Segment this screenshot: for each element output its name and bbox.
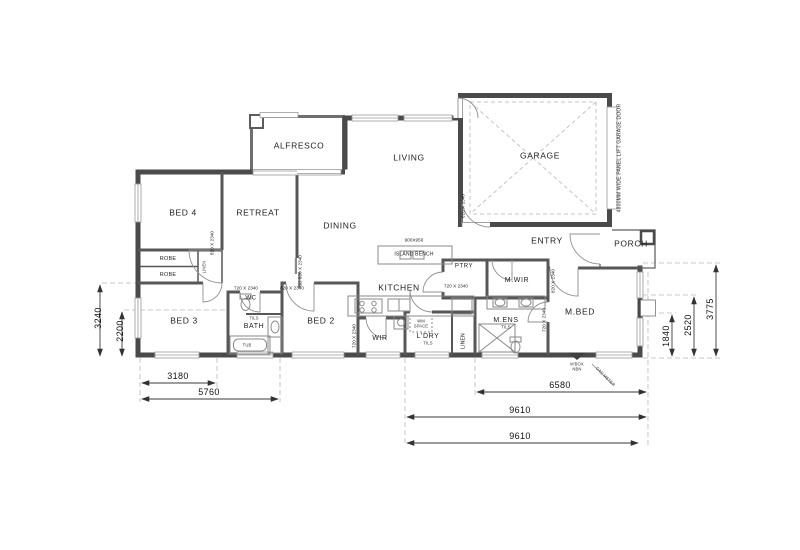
door-size-label-retreat-slider: SD 820 X 2340 [299,255,304,287]
room-label-living: LIVING [393,153,424,162]
dim-label-3180: 3180 [167,372,189,382]
room-label-porch: PORCH [614,239,648,248]
island-bench-label: ISLAND BENCH [394,252,433,258]
bath-vanity [268,317,282,337]
dim-label-6580: 6580 [549,381,571,391]
island-bench-size-label: 900X950 [405,239,424,244]
tub-label: TUB [243,344,252,349]
room-label-mens: M.ENS [493,317,518,325]
dim-label-5760: 5760 [198,388,220,398]
room-label-garage: GARAGE [520,151,560,160]
wm-space-label: WM SPACE [414,319,428,328]
room-label-entry: ENTRY [531,236,563,245]
dim-label-3240: 3240 [94,307,104,329]
door-size-label-bed2: 820 X 2340 [280,287,304,292]
room-label-robe-a: ROBE [160,256,176,262]
meter-box-label: M'BOX NBN [570,362,584,371]
dim-label-2200: 2200 [116,320,126,342]
room-label-bed3: BED 3 [170,316,198,325]
door-size-label-garage-entry: 820 X 2340 [462,194,467,218]
ldry-tiles-label: TILS [423,342,432,347]
door-size-label-bed4: 820 X 2340 [211,231,216,255]
dim-label-9610-b: 9610 [509,432,531,442]
bath-tiles-label: TILS [249,317,258,322]
door-size-label-wir: 720 X 2340 [353,324,358,348]
room-label-dining: DINING [323,221,356,230]
garage-door-note: 4800MM WIDE PANEL LIFT GARAGE DOOR [617,104,623,213]
room-label-robe-b: ROBE [160,272,176,278]
mens-tiles-label: TILS [501,326,510,331]
fixtures [230,246,613,385]
room-label-kitchen: KITCHEN [378,283,420,292]
room-label-alfresco: ALFRESCO [274,141,325,150]
room-label-wir: WIR [372,335,387,343]
room-label-bed2: BED 2 [307,316,335,325]
door-size-label-mens: 720 X 2340 [543,308,548,332]
dim-label-2520: 2520 [684,314,694,336]
dim-label-3775: 3775 [706,298,716,320]
room-label-ldry: L'DRY [417,333,440,341]
dim-label-1840: 1840 [662,325,672,347]
floor-plan-drawing [0,0,800,550]
dim-label-9610-a: 9610 [509,406,531,416]
room-label-bath: BATH [244,323,265,331]
door-size-label-ptry: 720 X 2340 [444,285,468,290]
door-size-label-wc: 720 X 2340 [234,287,258,292]
door-size-label-entry: 820 X 2340 [552,269,557,293]
room-label-mwir: M.WIR [505,277,529,285]
room-label-wc: WC [245,296,256,303]
porch-outline [600,230,655,268]
room-label-ptry: PTRY [455,264,473,271]
room-label-bed4: BED 4 [169,208,197,217]
room-label-retreat: RETREAT [236,208,279,217]
floor-plan-canvas: ALFRESCO LIVING GARAGE BED 4 RETREAT DIN… [0,0,800,550]
room-label-linen-closet: LINEN [203,261,208,274]
room-label-linen: LINEN [461,333,467,349]
room-label-mbed: M.BED [565,307,595,316]
